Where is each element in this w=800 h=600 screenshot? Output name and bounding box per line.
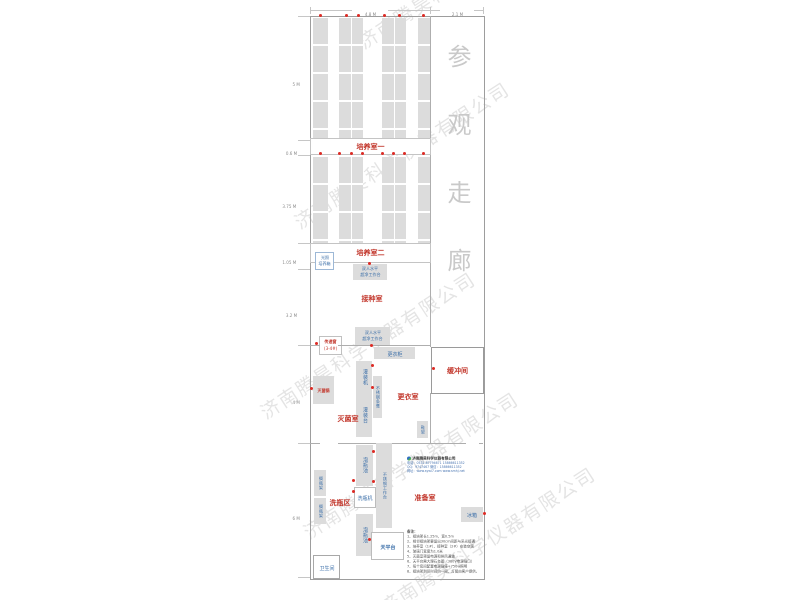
shoe-rack: 鞋架 <box>417 421 428 438</box>
dimension-label-6m: 6 M <box>280 506 304 525</box>
dimension-tick <box>298 577 310 578</box>
dimension-tick <box>298 16 310 17</box>
light-incubator-label: 培养箱 <box>318 262 330 267</box>
marker-dot <box>368 262 371 265</box>
dimension-tick <box>298 443 310 444</box>
culture-rack <box>382 157 406 243</box>
soak-pool-label: 泡瓶池 <box>361 457 369 474</box>
clean-bench-label: 双人水平 <box>364 331 380 336</box>
floor-plan-canvas: 济南腾昊科学仪器有限公司 济南腾昊科学仪器有限公司 济南腾昊科学仪器有限公司 济… <box>0 0 800 600</box>
marker-dot <box>361 152 364 155</box>
corridor-wall <box>430 16 431 347</box>
steel-worktable: 不锈钢工作台 <box>376 443 392 528</box>
wall <box>310 443 320 444</box>
culture-rack <box>418 18 430 138</box>
dimension-tick <box>298 345 310 346</box>
bottle-washer: 洗瓶机 <box>354 487 376 508</box>
soak-pool-label: 泡瓶池 <box>361 527 369 544</box>
room-label-culture-2: 培养室二 <box>357 248 385 258</box>
corridor-wall <box>430 393 431 443</box>
transfer-window-label: (3-4#) <box>324 346 337 351</box>
dimension-label-0-6m: 0.6 M <box>276 141 304 160</box>
culture-rack <box>313 157 328 243</box>
corridor-label: 参观走廊 <box>445 44 469 324</box>
balance-table-label: 天平台 <box>380 542 395 550</box>
steel-worktable-label: 不锈钢工作台 <box>381 472 387 499</box>
bottle-washer-label: 洗瓶机 <box>358 494 373 502</box>
marker-dot <box>403 152 406 155</box>
filling-machine: 灌装机 <box>356 361 372 393</box>
marker-dot <box>371 364 374 367</box>
light-incubator: 光照 培养箱 <box>315 252 334 270</box>
marker-dot <box>432 367 435 370</box>
dimension-label-4m: 4 M <box>280 390 304 409</box>
dimension-tick <box>430 7 431 14</box>
marker-dot <box>381 152 384 155</box>
bottle-rack-label: 搁瓶架 <box>317 504 323 518</box>
marker-dot <box>319 152 322 155</box>
bottle-rack: 搁瓶架 <box>314 470 326 496</box>
company-contact-block: 济南腾昊科学仪器有限公司 电话：0531-87794671 1586661135… <box>407 456 479 474</box>
marker-dot <box>345 14 348 17</box>
wall <box>479 443 483 444</box>
marker-dot <box>319 14 322 17</box>
dimension-label-3-2m: 3.2 M <box>276 303 304 322</box>
marker-dot <box>371 386 374 389</box>
marker-dot <box>372 450 375 453</box>
culture-rack <box>339 18 363 138</box>
room-label-sterilization: 灭菌室 <box>324 414 372 424</box>
toilet: 卫生间 <box>313 555 340 579</box>
soak-pool: 泡瓶池 <box>356 445 373 486</box>
wardrobe-label: 更衣柜 <box>387 349 402 357</box>
fridge-label: 冰箱 <box>467 511 477 519</box>
steel-bench: 不锈钢条凳 <box>373 376 382 418</box>
marker-dot <box>398 14 401 17</box>
culture-room-1-band: 培养室一 <box>310 138 431 155</box>
marker-dot <box>422 152 425 155</box>
company-web: 网址：www.sywl7.com www.smhj.net <box>407 470 479 474</box>
filling-machine-label: 灌装机 <box>360 369 368 386</box>
marker-dot <box>368 538 371 541</box>
shoe-rack-label: 鞋架 <box>420 425 426 434</box>
marker-dot <box>483 512 486 515</box>
marker-dot <box>392 152 395 155</box>
dimension-tick <box>298 269 310 270</box>
culture-rack <box>418 157 430 243</box>
room-label-preparation: 准备室 <box>410 493 440 503</box>
marker-dot <box>370 344 373 347</box>
light-incubator-label: 光照 <box>320 256 328 261</box>
dimension-label-5m: 5 M <box>280 72 304 91</box>
dimension-tick <box>310 7 311 14</box>
fridge: 冰箱 <box>461 507 483 522</box>
culture-rack <box>313 18 328 138</box>
room-label-inoculation: 接种室 <box>352 294 392 304</box>
marker-dot <box>372 480 375 483</box>
room-label-washing-area: 洗瓶区 <box>327 498 353 508</box>
marker-dot <box>310 387 313 390</box>
clean-bench: 双人水平 超净工作台 <box>353 264 387 280</box>
marker-dot <box>352 490 355 493</box>
wardrobe: 更衣柜 <box>374 347 415 359</box>
dimension-label-3-75m: 3.75 M <box>274 194 304 213</box>
autoclave-label: 灭菌锅 <box>317 387 329 393</box>
marker-dot <box>422 14 425 17</box>
culture-rack <box>339 157 363 243</box>
marker-dot <box>350 152 353 155</box>
transfer-window-label: 传递窗 <box>324 340 336 345</box>
clean-bench-label: 超净工作台 <box>362 337 382 342</box>
room-label-culture-1: 培养室一 <box>357 142 385 152</box>
bottle-rack-label: 搁瓶架 <box>317 476 323 490</box>
marker-dot <box>383 14 386 17</box>
note-item: 8、组培架到货时间约一周，灯管由客户提供。 <box>407 569 482 574</box>
buffer-room: 缓冲间 <box>431 347 484 394</box>
culture-rack <box>382 18 406 138</box>
balance-table: 天平台 <box>371 532 404 560</box>
notes-block: 备注： 1、组培架长1.25m，宽0.5m 2、相邻组培架要留出30cm间距与采… <box>407 529 482 574</box>
dimension-label-1-05m: 1.05 M <box>274 250 304 269</box>
marker-dot <box>315 342 318 345</box>
bottle-rack: 搁瓶架 <box>314 498 326 524</box>
marker-dot <box>357 14 360 17</box>
clean-bench-label: 双人水平 <box>362 267 378 272</box>
company-name: 济南腾昊科学仪器有限公司 <box>412 456 455 460</box>
clean-bench: 双人水平 超净工作台 <box>355 327 390 345</box>
room-label-changing: 更衣室 <box>388 392 428 402</box>
room-label-buffer: 缓冲间 <box>447 366 468 376</box>
toilet-label: 卫生间 <box>319 563 334 571</box>
wall <box>310 345 320 346</box>
wall <box>338 345 430 346</box>
clean-bench-label: 超净工作台 <box>360 273 380 278</box>
marker-dot <box>352 479 355 482</box>
dimension-tick <box>298 243 310 244</box>
autoclave: 灭菌锅 <box>313 376 334 404</box>
marker-dot <box>338 152 341 155</box>
dimension-tick <box>483 7 484 14</box>
company-logo <box>407 456 411 460</box>
steel-bench-label: 不锈钢条凳 <box>375 386 381 409</box>
wall <box>338 443 466 444</box>
